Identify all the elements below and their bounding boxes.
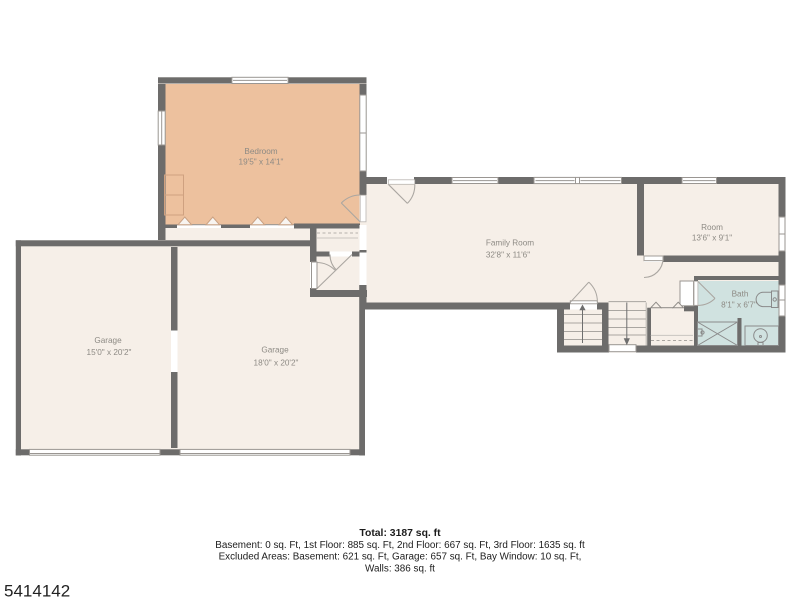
svg-text:13'6" x 9'1": 13'6" x 9'1" [692, 233, 732, 242]
svg-text:Room: Room [701, 223, 723, 232]
svg-text:Garage: Garage [94, 336, 122, 345]
svg-text:32'8" x 11'6": 32'8" x 11'6" [486, 251, 530, 260]
svg-text:Bath: Bath [732, 289, 749, 298]
svg-text:18'0" x 20'2": 18'0" x 20'2" [254, 359, 299, 368]
svg-text:5414142: 5414142 [4, 582, 70, 600]
svg-text:Total: 3187 sq. ft: Total: 3187 sq. ft [359, 528, 441, 539]
svg-text:Walls: 386 sq. ft: Walls: 386 sq. ft [365, 563, 435, 574]
svg-text:19'5" x 14'1": 19'5" x 14'1" [239, 158, 284, 167]
svg-text:Bedroom: Bedroom [244, 147, 277, 156]
svg-text:Family Room: Family Room [486, 239, 534, 248]
svg-text:Basement: 0 sq. Ft, 1st Floor:: Basement: 0 sq. Ft, 1st Floor: 885 sq. F… [215, 540, 585, 551]
svg-text:Excluded Areas: Basement: 621: Excluded Areas: Basement: 621 sq. Ft, Ga… [219, 552, 582, 563]
svg-text:15'0" x 20'2": 15'0" x 20'2" [87, 348, 132, 357]
svg-text:Garage: Garage [261, 345, 289, 354]
svg-text:8'1" x 6'7": 8'1" x 6'7" [721, 301, 757, 310]
